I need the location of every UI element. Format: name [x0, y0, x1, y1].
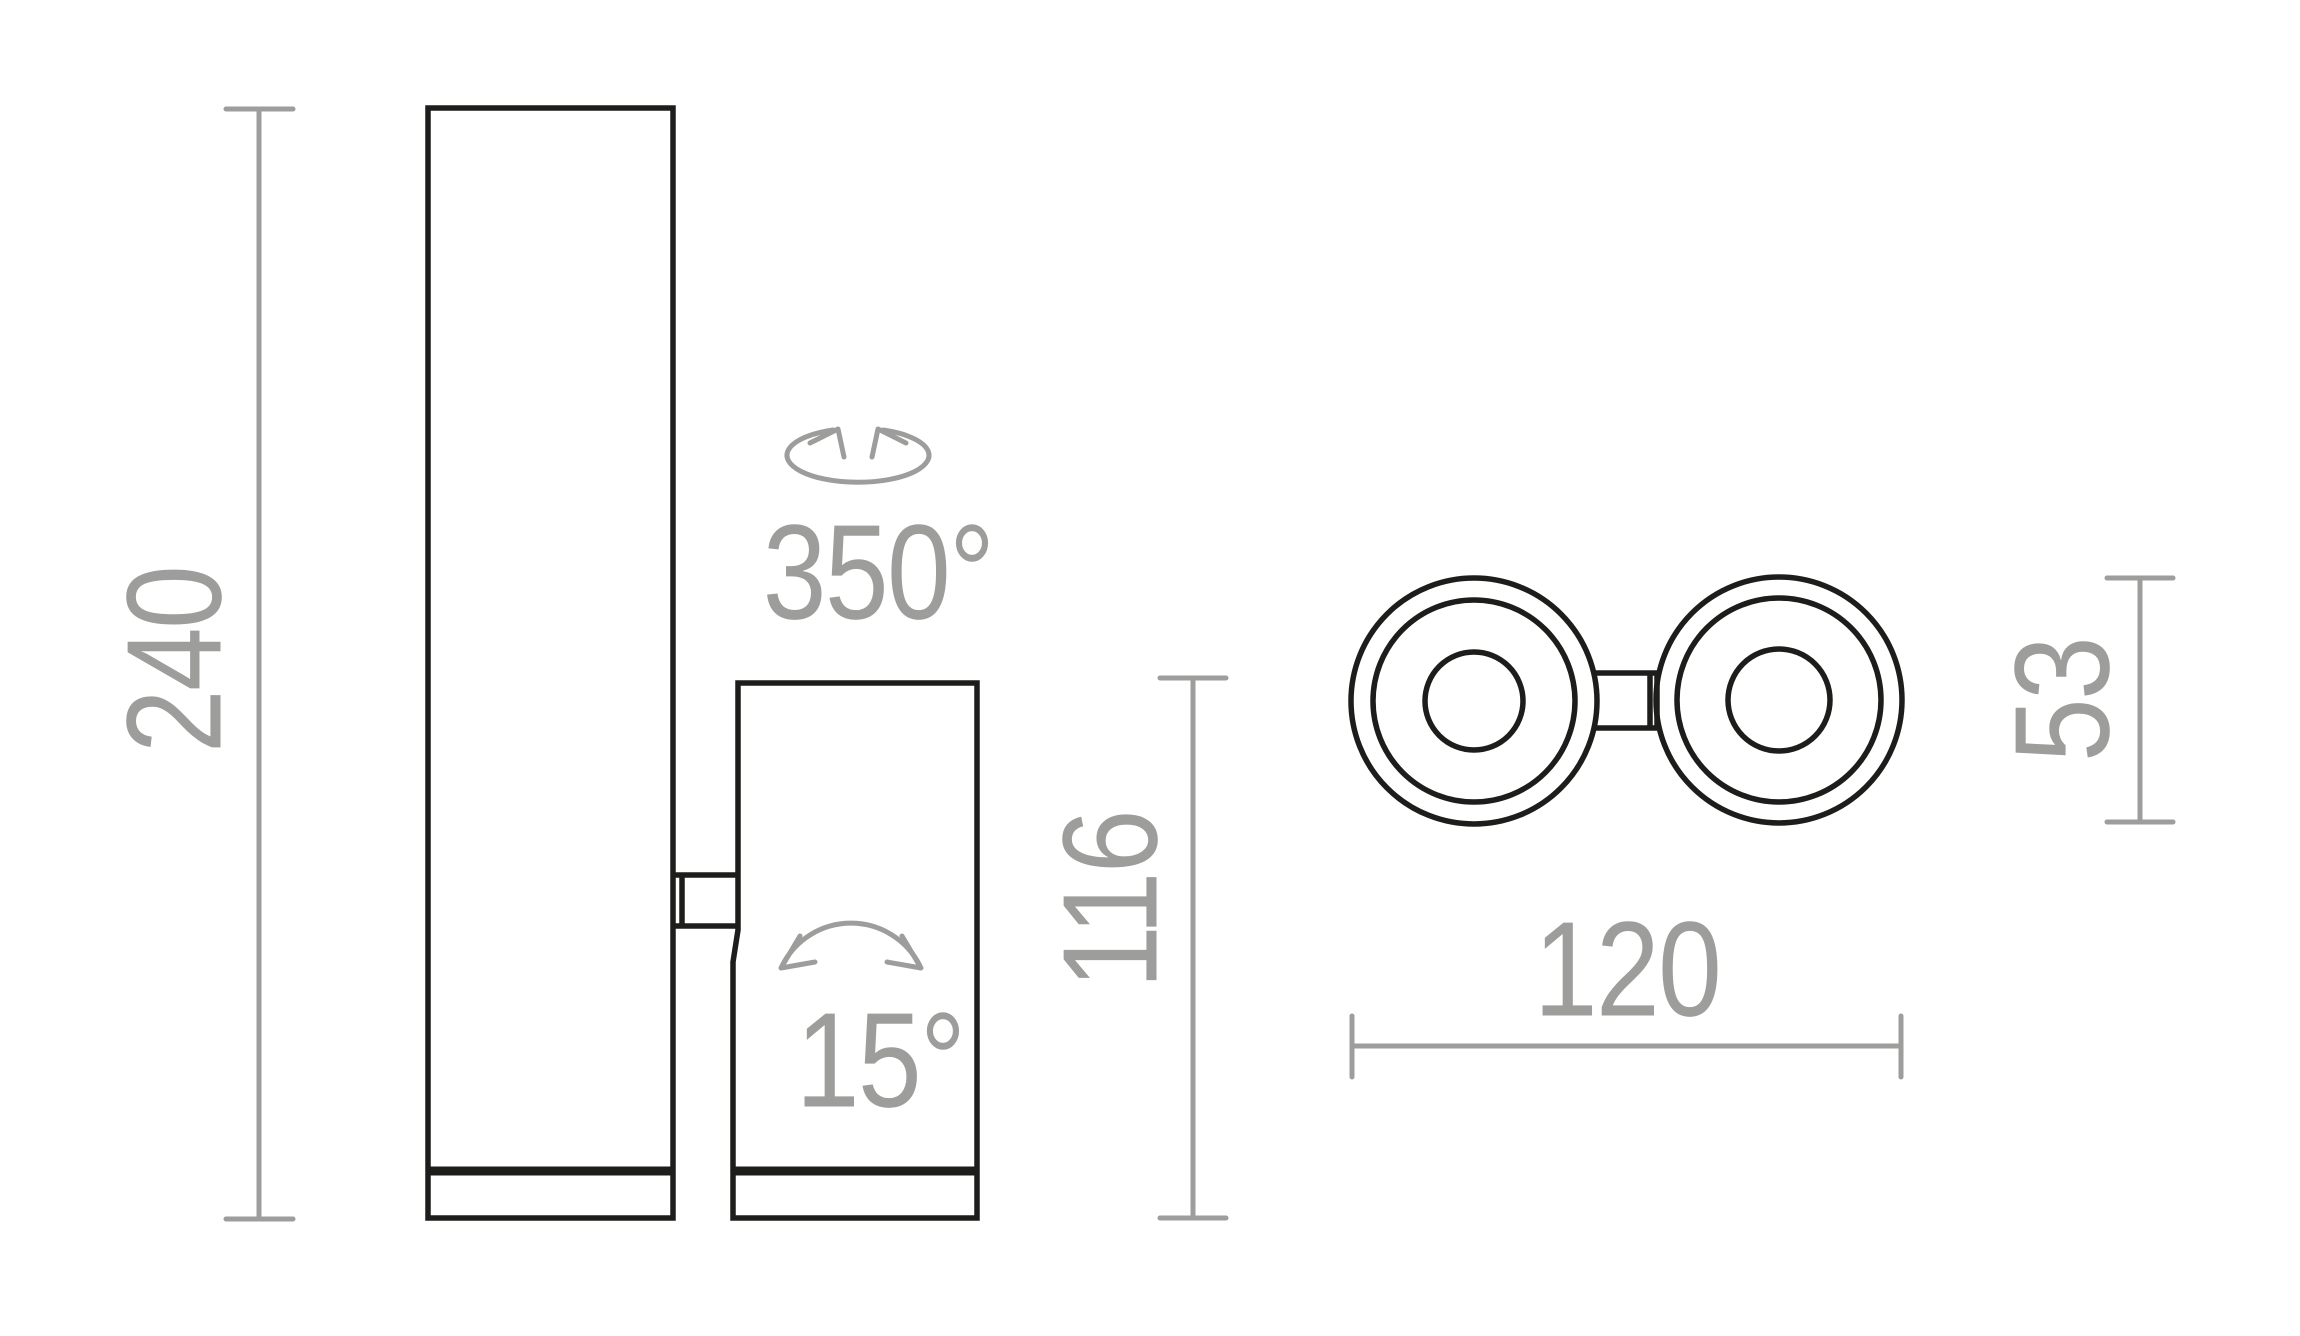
technical-drawing: [0, 0, 2300, 1336]
drawing-canvas: 240 350° 15° 116 120 53: [0, 0, 2300, 1336]
height-dimension-label: 240: [107, 567, 242, 753]
top-view-connector: [1594, 673, 1657, 728]
tilt-angle-label: 15°: [796, 993, 964, 1128]
spot-head-cylinder-outline: [733, 683, 977, 1218]
rotation-arrows-icon: [787, 429, 929, 482]
main-cylinder-outline: [428, 108, 673, 1218]
width-dimension-label: 120: [1534, 902, 1720, 1037]
pivot-connector: [675, 875, 738, 926]
right-spot-head-circles: [1656, 577, 1902, 823]
left-spot-head-circles: [1351, 578, 1597, 824]
tilt-arc-icon: [781, 923, 921, 968]
side-view: [226, 108, 1226, 1219]
rotation-angle-label: 350°: [763, 505, 994, 640]
head-length-dimension-label: 116: [1043, 811, 1178, 989]
diameter-dimension-label: 53: [1995, 638, 2130, 762]
